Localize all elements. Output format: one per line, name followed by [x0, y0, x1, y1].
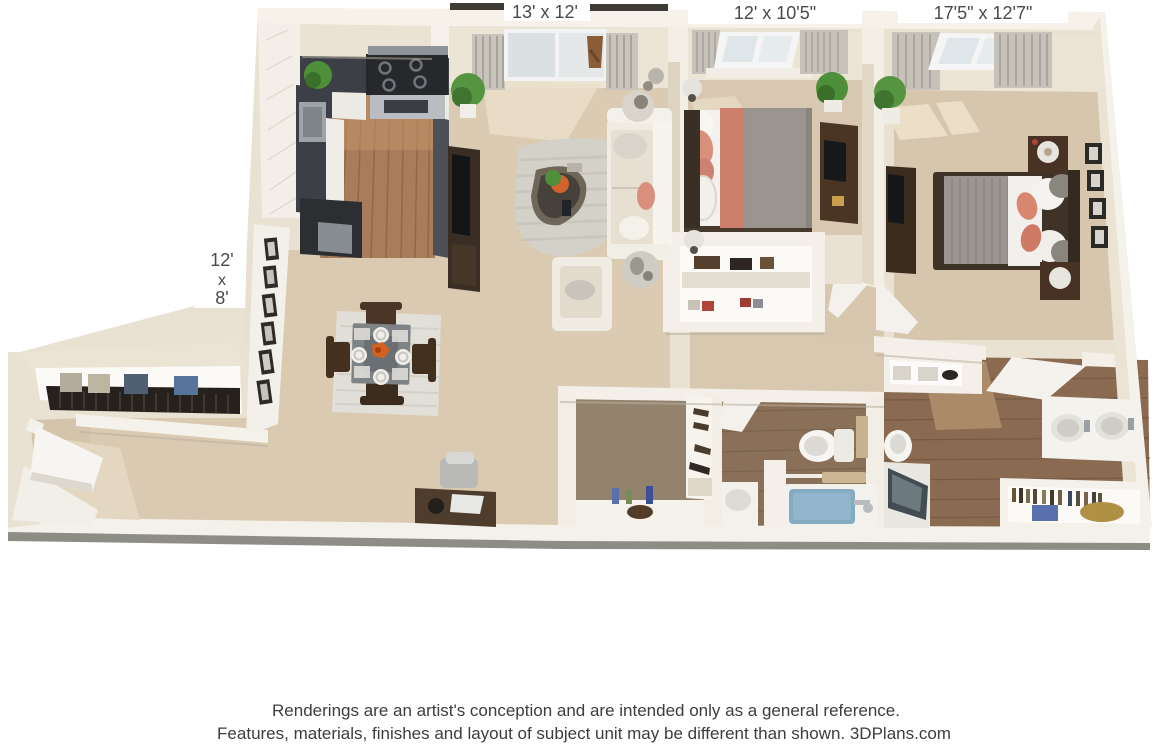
- svg-text:Renderings are an artist's con: Renderings are an artist's conception an…: [272, 701, 900, 720]
- svg-text:13' x 12': 13' x 12': [512, 2, 578, 22]
- svg-text:17'5" x 12'7": 17'5" x 12'7": [934, 3, 1033, 23]
- svg-text:12': 12': [210, 250, 233, 270]
- svg-text:Features, materials, finishes: Features, materials, finishes and layout…: [217, 724, 951, 743]
- svg-text:x: x: [218, 272, 226, 289]
- svg-text:8': 8': [215, 288, 228, 308]
- svg-text:12' x 10'5": 12' x 10'5": [734, 3, 816, 23]
